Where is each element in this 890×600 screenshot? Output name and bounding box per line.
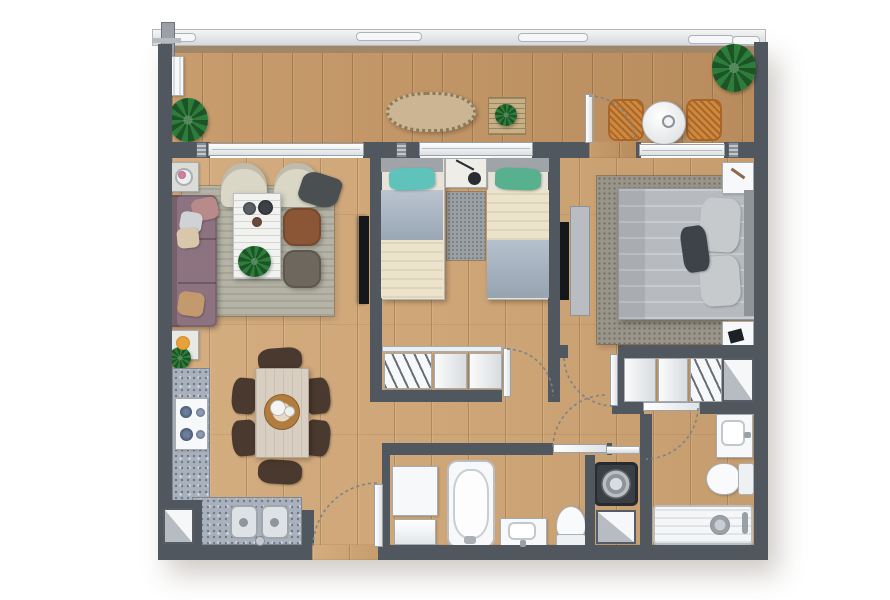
wall-master-bottom <box>618 345 754 358</box>
bedroom2-runner-rug <box>447 192 485 260</box>
kitchen-duct-shaft <box>163 508 194 544</box>
hatched-pier <box>728 142 739 158</box>
terrace-wall-seg <box>363 142 420 158</box>
master-closet-hangers <box>690 358 722 402</box>
bottom-wall-right <box>378 545 768 560</box>
railing-post-arm <box>153 38 181 43</box>
bathtub <box>447 460 495 548</box>
living-sliding-window <box>208 143 364 156</box>
ensuite-basin-bowl <box>721 420 745 446</box>
master-tv-cabinet <box>570 206 590 316</box>
terrace-chair-left <box>608 99 644 141</box>
hatched-pier <box>196 142 207 158</box>
fringed-bench <box>386 92 476 132</box>
wall-bedroom2-master <box>548 158 560 402</box>
master-closet-panel <box>658 358 688 402</box>
master-closet-panel <box>624 358 656 402</box>
master-sliding-window <box>639 144 725 156</box>
bedroom2-sliding-window <box>419 142 533 156</box>
sofa-seat-line <box>178 282 216 284</box>
railing-glass-panel <box>518 33 588 42</box>
green-pillow <box>495 167 542 191</box>
master-closet-duct-shaft <box>722 358 754 402</box>
teal-pillow <box>389 167 436 191</box>
centerpiece-plate <box>284 406 295 417</box>
pouf-leather <box>283 208 321 246</box>
hob-burner <box>196 408 205 417</box>
decor-bowl <box>252 217 262 227</box>
plant-on-table <box>495 104 517 126</box>
bedroom2-door-leaf <box>503 348 511 397</box>
hob-burner <box>180 428 193 441</box>
decor-bowl <box>258 200 273 215</box>
shower-fixture <box>742 512 748 534</box>
bed-left-duvet-blue <box>381 190 443 240</box>
bedroom2-closet-track <box>382 346 502 352</box>
small-floor-plant <box>169 347 191 369</box>
bath1-cabinet <box>392 466 438 516</box>
wall-master-bottom-stub <box>560 345 568 358</box>
master-headboard <box>744 190 754 316</box>
laundry-duct-shaft <box>596 510 636 544</box>
pink-flowers <box>178 171 186 179</box>
sofa-pillow-tan <box>176 290 205 317</box>
floor-plan-canvas <box>0 0 890 600</box>
hatched-pier <box>396 142 407 158</box>
terrace-wall-seg <box>532 142 589 158</box>
master-door-leaf <box>610 354 618 406</box>
shared-nightstand <box>445 158 487 188</box>
wall-hall-ensuite <box>640 414 652 545</box>
terrace-door-leaf <box>585 94 593 143</box>
decor-bowl <box>243 202 256 215</box>
hob-burner <box>180 406 192 418</box>
tub-faucet <box>464 536 476 544</box>
wall-bath1-left <box>382 455 390 545</box>
balcony-railing <box>152 29 766 46</box>
terrace-plant-left <box>168 98 208 142</box>
ensuite-toilet-bowl <box>706 463 740 495</box>
washer-drum <box>601 469 631 499</box>
orange-bowl <box>176 336 190 350</box>
guitar-body <box>468 172 481 185</box>
ensuite-basin-faucet <box>744 432 751 438</box>
terrace-door-opening <box>589 142 636 158</box>
walk-in-shower <box>653 505 753 545</box>
wall-bath1-top <box>382 443 553 455</box>
hob-burner <box>196 430 205 439</box>
kitchen-wall-stub <box>302 510 314 545</box>
sink-drain <box>270 518 279 527</box>
ensuite-toilet-tank <box>738 463 754 495</box>
closet-hanger-section <box>384 353 432 389</box>
basin-faucet <box>520 540 526 547</box>
wall-closet-bottom-right <box>700 402 754 414</box>
entry-door-leaf <box>374 484 383 547</box>
railing-glass-panel <box>356 32 422 41</box>
bed-left-duvet-cream <box>381 240 443 298</box>
bed-right-duvet-blue <box>487 240 549 298</box>
bath1-cabinet-low <box>394 519 436 545</box>
railing-glass-panel <box>688 35 734 44</box>
ensuite-door-leaf <box>643 402 700 411</box>
terrace-chair-right <box>686 99 722 141</box>
closet-sliding-panel <box>434 353 467 389</box>
bath1-door-leaf <box>553 444 607 453</box>
living-tv <box>359 216 369 304</box>
kitchen-faucet <box>255 536 265 546</box>
right-wall <box>754 42 768 560</box>
pouf-fabric <box>283 250 321 288</box>
bottom-wall-left <box>158 545 312 560</box>
basin-bowl <box>508 522 536 540</box>
sofa-pillow-cream <box>176 227 200 249</box>
master-tv <box>560 222 569 300</box>
shower-drain <box>710 515 730 535</box>
terrace-edge-strip <box>158 46 764 53</box>
wall-bath1-laundry <box>585 455 595 545</box>
bed-right-duvet-cream <box>487 190 549 240</box>
cup-on-table <box>662 115 675 128</box>
coffee-table-plant <box>238 246 271 277</box>
sink-drain <box>239 518 248 527</box>
wall-bedroom2-bottom <box>370 390 502 402</box>
closet-sliding-panel <box>469 353 502 389</box>
left-wall <box>158 44 172 560</box>
entry-opening <box>312 545 378 560</box>
dining-chair <box>257 459 302 485</box>
terrace-plant-corner <box>712 44 756 92</box>
gas-hob <box>175 398 208 450</box>
